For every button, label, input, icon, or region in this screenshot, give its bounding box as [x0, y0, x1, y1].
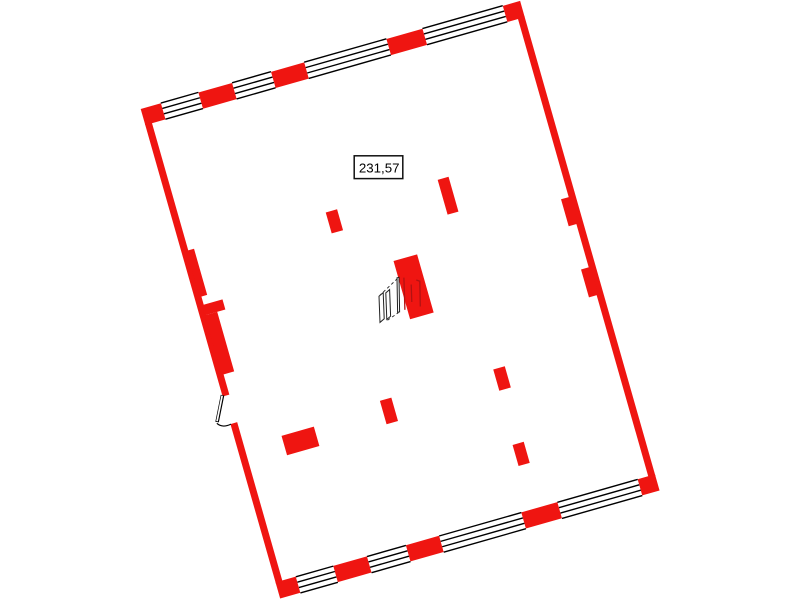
- svg-text:231,57: 231,57: [359, 161, 400, 176]
